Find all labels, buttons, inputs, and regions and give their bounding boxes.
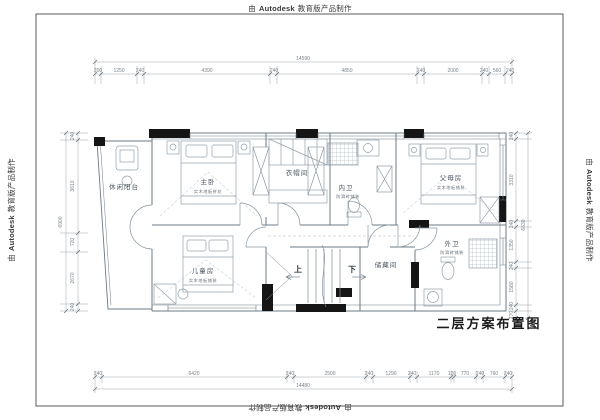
shaft-grid	[328, 143, 358, 165]
door-outer-bath	[415, 228, 437, 250]
watermark-top: 由Autodesk教育版产品制作	[248, 3, 352, 13]
dim-label: 240	[270, 68, 279, 74]
dim-label: 3610	[70, 180, 76, 191]
dim-label: 240	[70, 303, 76, 312]
dim-label: 240	[476, 371, 485, 377]
dim-label: 4850	[341, 68, 352, 74]
dim-label: 2500	[324, 371, 335, 377]
dim-label: 560	[493, 68, 502, 74]
stairs-down-arrow	[352, 275, 366, 280]
room-finish-kids: 实木地板铺装	[189, 277, 217, 284]
watermark-right: 由Autodesk教育版产品制作	[585, 158, 595, 262]
dim-label: 240	[480, 68, 489, 74]
dim-label: 240	[509, 262, 515, 271]
dim-label: 240	[408, 371, 417, 377]
dim-label: 240	[509, 132, 515, 141]
wall-fills	[94, 129, 506, 312]
dim-label: 240	[94, 371, 103, 377]
dim-label: 2670	[70, 272, 76, 283]
door-cloak	[278, 203, 300, 225]
dim-total-left: 6900	[58, 216, 64, 227]
dim-label: 240	[365, 371, 374, 377]
drawing-sheet: 由Autodesk教育版产品制作 由Autodesk教育版产品制作 由Autod…	[0, 0, 600, 420]
door-inner-bath	[348, 201, 372, 225]
dimension-labels-top: 14590 200 1250 240 4390 240 4850 240 200…	[94, 56, 515, 74]
bed-parents	[409, 144, 488, 204]
dim-label: 240	[70, 132, 76, 141]
dimension-labels-left: 6900 240 3610 720 2670 240	[58, 132, 76, 312]
dimension-labels-bottom: 14480 240 6420 240 2500 240 1290 240 117…	[94, 371, 513, 389]
dim-label: 1350	[509, 239, 515, 250]
dim-label: 1580	[509, 281, 515, 292]
room-label-inner-bath: 内卫	[339, 183, 354, 192]
dim-label: 770	[461, 371, 470, 377]
dim-label: 3310	[509, 174, 515, 185]
room-label-master: 主卧	[201, 177, 216, 186]
dim-label: 240	[286, 371, 295, 377]
room-label-balcony: 休闲阳台	[109, 182, 139, 191]
room-label-outer-bath: 外卫	[445, 239, 460, 248]
dim-label: 4390	[201, 68, 212, 74]
floor-plan-drawing: 由Autodesk教育版产品制作 由Autodesk教育版产品制作 由Autod…	[0, 0, 600, 420]
stairs-up-label: 上	[294, 264, 302, 274]
stairs-up-arrow	[286, 275, 300, 280]
room-finish-parents: 实木地板铺装	[437, 184, 465, 191]
drawing-title: 二层方案布置图	[436, 316, 541, 331]
stairs	[266, 245, 366, 307]
room-label-parents: 父母房	[440, 173, 463, 182]
door-master	[240, 203, 262, 225]
dim-label: 240	[509, 302, 515, 311]
furniture	[116, 139, 488, 306]
dim-label: 760	[490, 371, 499, 377]
dim-label: 240	[417, 68, 426, 74]
dim-label: 240	[504, 371, 513, 377]
dim-label: 720	[70, 238, 76, 247]
room-finish-master: 实木地板拼花	[194, 188, 222, 195]
dim-label: 240	[136, 68, 145, 74]
dim-label: 1250	[113, 68, 124, 74]
room-label-kids: 儿童房	[192, 266, 215, 275]
room-finish-inner-bath: 防滑砖铺装	[336, 193, 360, 200]
dim-label: 1290	[385, 371, 396, 377]
door-kids	[246, 227, 266, 247]
dim-total-top: 14590	[296, 56, 310, 62]
door-balcony	[130, 205, 152, 249]
shower-grid	[469, 239, 497, 268]
dim-total-right: 6630	[521, 219, 527, 230]
watermark-bottom: 由Autodesk教育版产品制作	[248, 403, 352, 413]
dim-label: 120	[448, 371, 457, 377]
room-finish-outer-bath: 防滑砖铺装	[440, 249, 464, 256]
room-label-storage: 储藏间	[375, 260, 398, 269]
room-label-cloak: 衣帽间	[286, 168, 309, 177]
dim-label: 2000	[447, 68, 458, 74]
stairs-down-label: 下	[348, 265, 356, 274]
dim-label: 200	[94, 68, 103, 74]
dim-total-bottom: 14480	[296, 383, 310, 389]
dim-label: 6420	[188, 371, 199, 377]
watermark-left: 由Autodesk教育版产品制作	[6, 158, 16, 262]
dim-label: 1170	[429, 371, 440, 377]
dim-label: 240	[506, 68, 515, 74]
balcony-chair	[116, 146, 138, 186]
dim-label: 240	[509, 220, 515, 229]
outer-bath-fixtures	[424, 257, 455, 306]
